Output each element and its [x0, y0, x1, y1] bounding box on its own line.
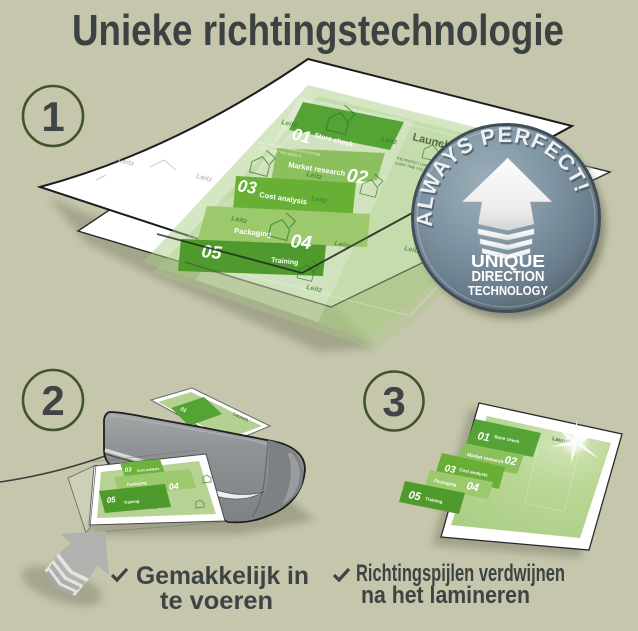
svg-text:03: 03	[236, 176, 258, 198]
svg-text:02: 02	[345, 165, 370, 189]
svg-text:01: 01	[476, 430, 490, 444]
svg-text:2: 2	[41, 377, 64, 424]
svg-text:04: 04	[465, 480, 479, 494]
svg-text:03: 03	[125, 467, 133, 474]
svg-text:04: 04	[168, 481, 179, 492]
svg-text:TECHNOLOGY: TECHNOLOGY	[468, 283, 548, 298]
svg-text:UNIQUE: UNIQUE	[471, 251, 545, 271]
svg-text:Unieke richtingstechnologie: Unieke richtingstechnologie	[72, 6, 564, 55]
svg-text:1: 1	[41, 93, 64, 140]
svg-text:02: 02	[503, 454, 517, 468]
svg-text:3: 3	[382, 378, 405, 425]
svg-text:05: 05	[201, 241, 224, 263]
svg-text:05: 05	[106, 495, 116, 505]
svg-text:na het lamineren: na het lamineren	[361, 582, 530, 609]
svg-text:04: 04	[289, 231, 313, 254]
svg-text:Gemakkelijk in: Gemakkelijk in	[136, 562, 309, 590]
svg-text:te voeren: te voeren	[160, 587, 273, 615]
